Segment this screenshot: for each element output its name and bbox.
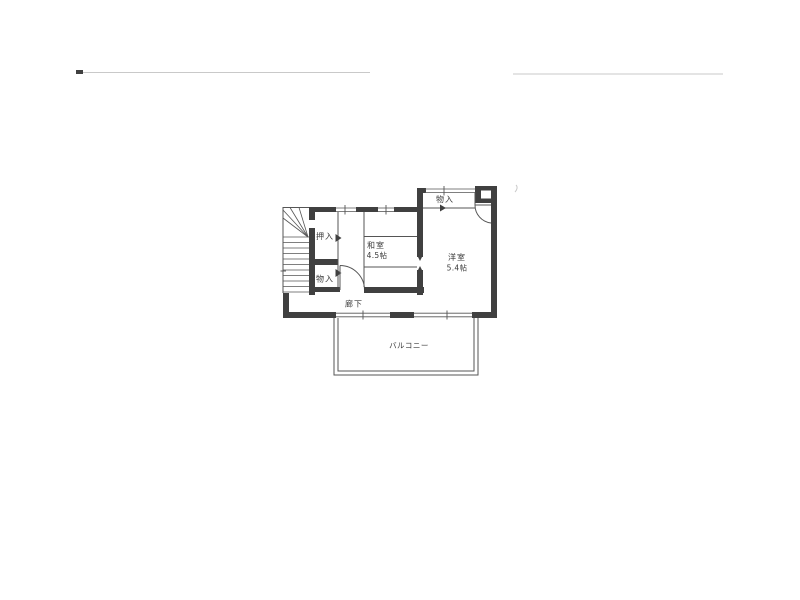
south-wall-segment (472, 312, 497, 318)
stairs-east-wall (309, 212, 315, 220)
south-wall-segment (283, 312, 336, 318)
scan-artifacts (76, 70, 723, 192)
scan-artifact-squiggle (515, 185, 517, 192)
label-washitsu: 和室 (367, 240, 385, 250)
door-swing-arc (340, 266, 365, 291)
wall-segment (417, 188, 426, 193)
wall-segment (356, 207, 378, 212)
stair-winder-line (283, 218, 308, 237)
label-balcony: バルコニー (389, 341, 429, 350)
scan-artifact-dash (76, 70, 83, 74)
north-wall-left-block (283, 205, 417, 215)
scanned-floorplan-page: 物入 押入 物入 和室 4.5帖 洋室 5.4帖 廊下 バルコニー (0, 0, 800, 600)
stair-winder-line (290, 208, 308, 238)
floor-plan-drawing: 物入 押入 物入 和室 4.5帖 洋室 5.4帖 廊下 バルコニー (0, 0, 800, 600)
label-upper-storage: 物入 (436, 194, 454, 204)
label-oshiire: 押入 (316, 231, 334, 241)
label-youshitsu-size: 5.4帖 (447, 263, 468, 273)
door-swing-arc (475, 205, 491, 223)
washitsu-south-wall (364, 287, 424, 293)
youshitsu-block (417, 186, 497, 318)
label-washitsu-size: 4.5帖 (367, 250, 388, 260)
wall-segment (309, 207, 336, 212)
door-jamb-marker (417, 266, 423, 272)
sliding-door-marker (440, 205, 446, 212)
south-wall-segment (390, 312, 414, 318)
west-wall-upper (417, 193, 423, 257)
stairs (283, 208, 315, 296)
label-youshitsu: 洋室 (448, 252, 466, 262)
closet-bottom-wall (312, 287, 340, 292)
label-lower-storage: 物入 (316, 274, 334, 284)
wall-segment (394, 207, 417, 212)
label-corridor: 廊下 (345, 299, 363, 309)
door-jamb-marker (417, 255, 423, 261)
east-wall (491, 203, 497, 318)
duct-square-core (481, 191, 491, 199)
closet-divider-wall (312, 259, 338, 265)
